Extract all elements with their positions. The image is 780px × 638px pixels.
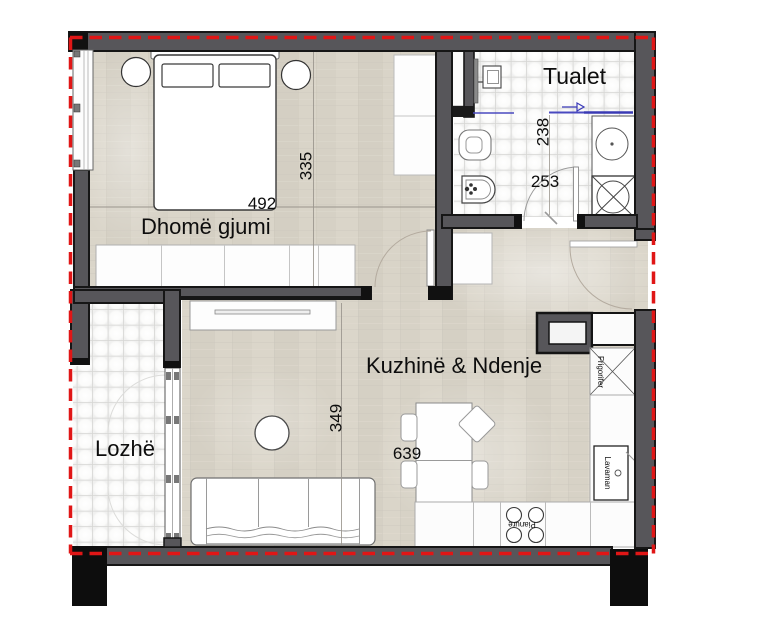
svg-text:Lavaman: Lavaman: [603, 457, 612, 490]
svg-text:Frigorifer: Frigorifer: [596, 356, 605, 388]
svg-text:Pianure: Pianure: [508, 520, 536, 529]
svg-text:Tualet: Tualet: [543, 63, 607, 89]
svg-text:238: 238: [533, 118, 552, 146]
svg-text:492: 492: [248, 194, 276, 213]
svg-text:335: 335: [296, 152, 315, 180]
svg-text:639: 639: [393, 444, 421, 463]
svg-text:349: 349: [326, 404, 345, 432]
svg-text:Lozhë: Lozhë: [95, 436, 155, 461]
svg-text:Dhomë gjumi: Dhomë gjumi: [141, 214, 271, 239]
svg-text:253: 253: [531, 172, 559, 191]
svg-text:Kuzhinë & Ndenje: Kuzhinë & Ndenje: [366, 353, 542, 378]
